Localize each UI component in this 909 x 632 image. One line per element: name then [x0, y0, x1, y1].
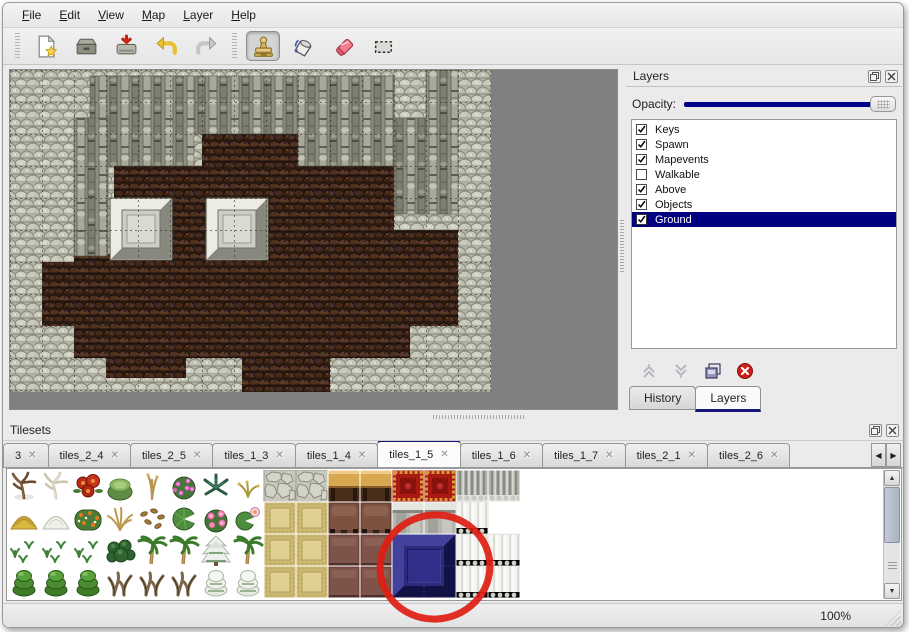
- tileset-tile-white-curtain[interactable]: [488, 534, 520, 566]
- move-layer-up-button[interactable]: [639, 361, 659, 381]
- tileset-tile-white-curtain[interactable]: [456, 502, 488, 534]
- float-panel-button[interactable]: [869, 424, 882, 437]
- layer-visibility-checkbox[interactable]: [636, 199, 647, 210]
- tileset-tile-twisted-tree[interactable]: [173, 573, 195, 595]
- tileset-tab-tiles_1_4[interactable]: tiles_1_4✕: [295, 443, 378, 467]
- move-layer-down-button[interactable]: [671, 361, 691, 381]
- save-file-icon: [114, 34, 139, 59]
- menu-map[interactable]: Map: [133, 5, 174, 25]
- duplicate-icon: [704, 362, 722, 380]
- layer-row-above[interactable]: Above: [632, 182, 896, 197]
- redo-button[interactable]: [189, 31, 223, 61]
- tileset-tab-label: 3: [15, 450, 21, 462]
- tab-close-icon[interactable]: ✕: [358, 450, 366, 461]
- tileset-tiles[interactable]: [8, 470, 520, 598]
- layer-row-mapevents[interactable]: Mapevents: [632, 152, 896, 167]
- panel-tab-history[interactable]: History: [629, 386, 696, 410]
- scrollbar-down-button[interactable]: ▼: [884, 583, 900, 599]
- tileset-tile-white-curtain[interactable]: [456, 566, 488, 598]
- tab-close-icon[interactable]: ✕: [28, 450, 36, 461]
- opacity-label: Opacity:: [632, 97, 676, 111]
- tileset-tab-tiles_1_5[interactable]: tiles_1_5✕: [377, 441, 460, 467]
- menu-edit[interactable]: Edit: [50, 5, 89, 25]
- tileset-tile-sprouts[interactable]: [11, 542, 33, 562]
- layer-name: Keys: [655, 124, 679, 136]
- tab-close-icon[interactable]: ✕: [688, 450, 696, 461]
- tileset-tile-green-stump[interactable]: [108, 479, 132, 500]
- float-panel-button[interactable]: [868, 70, 881, 83]
- open-file-icon: [74, 34, 99, 59]
- menu-view[interactable]: View: [89, 5, 133, 25]
- duplicate-layer-button[interactable]: [703, 361, 723, 381]
- tab-close-icon[interactable]: ✕: [111, 450, 119, 461]
- scrollbar-thumb[interactable]: [884, 487, 900, 543]
- tileset-tab-tiles_2_4[interactable]: tiles_2_4✕: [48, 443, 131, 467]
- tileset-tile-gray-mantle[interactable]: [392, 502, 424, 534]
- layer-name: Above: [655, 184, 686, 196]
- rect-select-icon: [371, 34, 396, 59]
- tileset-tile-palm-tree[interactable]: [235, 537, 262, 564]
- layers-panel-title: Layers: [626, 69, 868, 83]
- tileset-tile-lily-pad-flower[interactable]: [236, 508, 260, 531]
- layer-visibility-checkbox[interactable]: [636, 139, 647, 150]
- tilesets-panel-titlebar: Tilesets: [3, 420, 903, 441]
- tab-close-icon[interactable]: ✕: [770, 450, 778, 461]
- tileset-tile-red-flower[interactable]: [73, 475, 103, 498]
- map-stone-block: [206, 198, 268, 260]
- layer-visibility-checkbox[interactable]: [636, 154, 647, 165]
- tileset-tab-label: tiles_1_7: [554, 450, 598, 462]
- tileset-tile-palm-tree[interactable]: [171, 537, 198, 564]
- stamp-tool-button[interactable]: [246, 31, 280, 61]
- tab-close-icon[interactable]: ✕: [440, 449, 448, 460]
- tileset-tile-twisted-tree[interactable]: [141, 573, 163, 595]
- zoom-level: 100%: [820, 609, 851, 623]
- tileset-tile-brown-tile[interactable]: [328, 566, 360, 598]
- tileset-tile-blue-tile[interactable]: [392, 534, 456, 598]
- rect-select-tool-button[interactable]: [366, 31, 400, 61]
- tileset-tile-tan-floor[interactable]: [264, 566, 296, 598]
- scrollbar-grip: [888, 562, 897, 569]
- menu-file[interactable]: File: [13, 5, 50, 25]
- tileset-tab-label: tiles_2_1: [637, 450, 681, 462]
- tileset-tile-dark-fern[interactable]: [205, 475, 227, 494]
- tileset-tile-white-curtain[interactable]: [456, 534, 488, 566]
- tileset-tile-red-carpet[interactable]: [392, 470, 424, 502]
- menu-layer[interactable]: Layer: [174, 5, 222, 25]
- save-file-button[interactable]: [109, 31, 143, 61]
- tileset-tile-red-carpet[interactable]: [424, 470, 456, 502]
- vertical-splitter[interactable]: [619, 65, 625, 414]
- tileset-tile-brown-cushion[interactable]: [328, 502, 360, 534]
- tileset-tab-tiles_2_1[interactable]: tiles_2_1✕: [625, 443, 708, 467]
- layer-visibility-checkbox[interactable]: [636, 169, 647, 180]
- tileset-tile-brown-cushion[interactable]: [360, 502, 392, 534]
- eraser-tool-button[interactable]: [326, 31, 360, 61]
- layers-panel-titlebar: Layers: [626, 66, 902, 87]
- opacity-slider[interactable]: [684, 96, 896, 112]
- redo-icon: [194, 34, 219, 59]
- tileset-tile-white-curtain[interactable]: [488, 566, 520, 598]
- tileset-tile-hay-mound[interactable]: [11, 517, 37, 530]
- map-stone-block: [110, 198, 172, 260]
- tileset-tile-tan-floor[interactable]: [264, 502, 296, 534]
- layer-name: Objects: [655, 199, 692, 211]
- layers-panel-tabs: HistoryLayers: [629, 386, 899, 413]
- tileset-tile-white-tree[interactable]: [45, 473, 67, 498]
- tilesets-panel: Tilesets 3✕tiles_2_4✕tiles_2_5✕tiles_1_3…: [3, 420, 903, 603]
- chevron-up-icon: [640, 362, 658, 380]
- close-icon: [888, 426, 897, 435]
- tab-close-icon[interactable]: ✕: [605, 450, 613, 461]
- tileset-tile-snow-mound[interactable]: [43, 517, 69, 530]
- tileset-tab-tiles_1_6[interactable]: tiles_1_6✕: [460, 443, 543, 467]
- tileset-tile-table-tan[interactable]: [360, 470, 392, 502]
- delete-layer-button[interactable]: [735, 361, 755, 381]
- layer-actions: [631, 358, 897, 384]
- tileset-scrollbar[interactable]: ▲ ▼: [883, 470, 900, 599]
- tileset-tab-label: tiles_2_5: [142, 450, 186, 462]
- toolbar-grip[interactable]: [15, 33, 20, 59]
- layer-row-spawn[interactable]: Spawn: [632, 137, 896, 152]
- tileset-tile-dead-tree[interactable]: [13, 473, 35, 500]
- tileset-tile-gray-curtain[interactable]: [456, 470, 490, 502]
- horizontal-splitter[interactable]: [3, 413, 903, 420]
- layer-row-objects[interactable]: Objects: [632, 197, 896, 212]
- float-icon: [871, 426, 880, 435]
- tileset-tile-twisted-tree[interactable]: [109, 573, 131, 595]
- close-panel-button[interactable]: [885, 70, 898, 83]
- tileset-tile-tan-floor[interactable]: [296, 502, 328, 534]
- tileset-tile-dry-grass[interactable]: [108, 508, 132, 530]
- layer-name: Ground: [655, 214, 692, 226]
- opacity-row: Opacity:: [626, 93, 902, 115]
- tileset-tile-brown-tile[interactable]: [360, 566, 392, 598]
- tileset-tile-sprouts[interactable]: [43, 542, 65, 562]
- scrollbar-up-button[interactable]: ▲: [884, 470, 900, 486]
- tileset-tile-table-tan[interactable]: [328, 470, 360, 502]
- tileset-tile-conifer[interactable]: [45, 571, 67, 597]
- tab-scroll-buttons: ◀ ▶: [871, 443, 901, 467]
- tileset-tab-label: tiles_1_3: [224, 450, 268, 462]
- tileset-tile-cobble[interactable]: [296, 470, 328, 502]
- tileset-content[interactable]: ▲ ▼: [6, 468, 902, 601]
- tileset-tile-conifer[interactable]: [77, 571, 99, 597]
- tileset-tile-yellow-sprig[interactable]: [238, 481, 260, 498]
- tileset-tile-leaf-scatter[interactable]: [140, 508, 165, 529]
- tileset-tile-dark-bush[interactable]: [107, 540, 135, 562]
- tileset-tab-tiles_2_5[interactable]: tiles_2_5✕: [130, 443, 213, 467]
- layer-visibility-checkbox[interactable]: [636, 184, 647, 195]
- tileset-tile-flower-patch[interactable]: [75, 510, 101, 530]
- opacity-slider-handle[interactable]: [870, 96, 896, 112]
- tileset-tile-pink-flower-bush[interactable]: [173, 477, 195, 499]
- scroll-tabs-left-button[interactable]: ◀: [871, 443, 886, 467]
- paint-bucket-icon: [291, 34, 316, 59]
- new-file-button[interactable]: [29, 31, 63, 61]
- float-icon: [870, 72, 879, 81]
- tileset-tab-label: tiles_1_4: [307, 450, 351, 462]
- close-panel-button[interactable]: [886, 424, 899, 437]
- tab-close-icon[interactable]: ✕: [275, 450, 283, 461]
- status-bar: 100%: [3, 603, 903, 628]
- app-window: FileEditViewMapLayerHelp: [2, 2, 904, 628]
- toolbar: [3, 28, 903, 65]
- resize-grip[interactable]: [885, 610, 901, 626]
- tab-close-icon[interactable]: ✕: [523, 450, 531, 461]
- scroll-tabs-right-button[interactable]: ▶: [886, 443, 901, 467]
- tileset-tile-rose-bush[interactable]: [205, 510, 227, 532]
- tileset-tile-palm-tree[interactable]: [139, 537, 166, 564]
- layer-row-walkable[interactable]: Walkable: [632, 167, 896, 182]
- tileset-tile-snow-pine[interactable]: [202, 536, 230, 566]
- tileset-tile-tan-sapling[interactable]: [146, 473, 158, 499]
- tileset-tile-cobble[interactable]: [264, 470, 296, 502]
- layer-name: Mapevents: [655, 154, 709, 166]
- tileset-tabbar: 3✕tiles_2_4✕tiles_2_5✕tiles_1_3✕tiles_1_…: [3, 441, 903, 468]
- tileset-tile-tan-floor[interactable]: [296, 534, 328, 566]
- tileset-tile-lily-pad[interactable]: [173, 508, 197, 530]
- tileset-tile-snow-conifer[interactable]: [205, 571, 227, 597]
- delete-icon: [736, 362, 754, 380]
- tileset-tab-tiles_1_7[interactable]: tiles_1_7✕: [542, 443, 625, 467]
- tileset-tab-label: tiles_1_6: [472, 450, 516, 462]
- menu-bar: FileEditViewMapLayerHelp: [3, 3, 903, 28]
- panel-tab-layers[interactable]: Layers: [695, 386, 761, 412]
- tileset-tab-label: tiles_2_4: [60, 450, 104, 462]
- tileset-tile-gray-curtain[interactable]: [488, 470, 520, 502]
- fill-tool-button[interactable]: [286, 31, 320, 61]
- eraser-icon: [331, 34, 356, 59]
- layer-visibility-checkbox[interactable]: [636, 124, 647, 135]
- tileset-tab-label: tiles_2_6: [719, 450, 763, 462]
- toolbar-grip[interactable]: [232, 33, 237, 59]
- map-canvas[interactable]: [10, 70, 491, 392]
- layer-row-ground[interactable]: Ground: [632, 212, 896, 227]
- tab-close-icon[interactable]: ✕: [193, 450, 201, 461]
- opacity-slider-track[interactable]: [684, 102, 896, 107]
- layer-visibility-checkbox[interactable]: [636, 214, 647, 225]
- undo-icon: [154, 34, 179, 59]
- layers-list[interactable]: KeysSpawnMapeventsWalkableAboveObjectsGr…: [631, 119, 897, 349]
- layers-panel: Layers Opacity: KeysSpawnMapeventsWalkab…: [626, 66, 902, 413]
- tileset-tab-3[interactable]: 3✕: [3, 443, 49, 467]
- tileset-tile-gray-mantle[interactable]: [424, 502, 456, 534]
- tileset-tile-sprouts[interactable]: [75, 542, 97, 562]
- tileset-tile-tan-floor[interactable]: [296, 566, 328, 598]
- new-file-icon: [34, 34, 59, 59]
- tileset-tile-tan-floor[interactable]: [264, 534, 296, 566]
- map-viewport[interactable]: [9, 69, 618, 410]
- tileset-tile-conifer[interactable]: [13, 571, 35, 597]
- tileset-tile-brown-tile[interactable]: [360, 534, 392, 566]
- stamp-icon: [251, 34, 276, 59]
- layer-row-keys[interactable]: Keys: [632, 122, 896, 137]
- tileset-tile-brown-tile[interactable]: [328, 534, 360, 566]
- undo-button[interactable]: [149, 31, 183, 61]
- menu-help[interactable]: Help: [222, 5, 265, 25]
- tileset-tab-tiles_1_3[interactable]: tiles_1_3✕: [212, 443, 295, 467]
- tileset-tab-label: tiles_1_5: [389, 449, 433, 461]
- tileset-tile-snow-conifer[interactable]: [237, 571, 259, 597]
- chevron-down-icon: [672, 362, 690, 380]
- open-file-button[interactable]: [69, 31, 103, 61]
- layer-name: Spawn: [655, 139, 689, 151]
- layer-name: Walkable: [655, 169, 700, 181]
- close-icon: [887, 72, 896, 81]
- tileset-tab-tiles_2_6[interactable]: tiles_2_6✕: [707, 443, 790, 467]
- tilesets-panel-title: Tilesets: [3, 423, 869, 437]
